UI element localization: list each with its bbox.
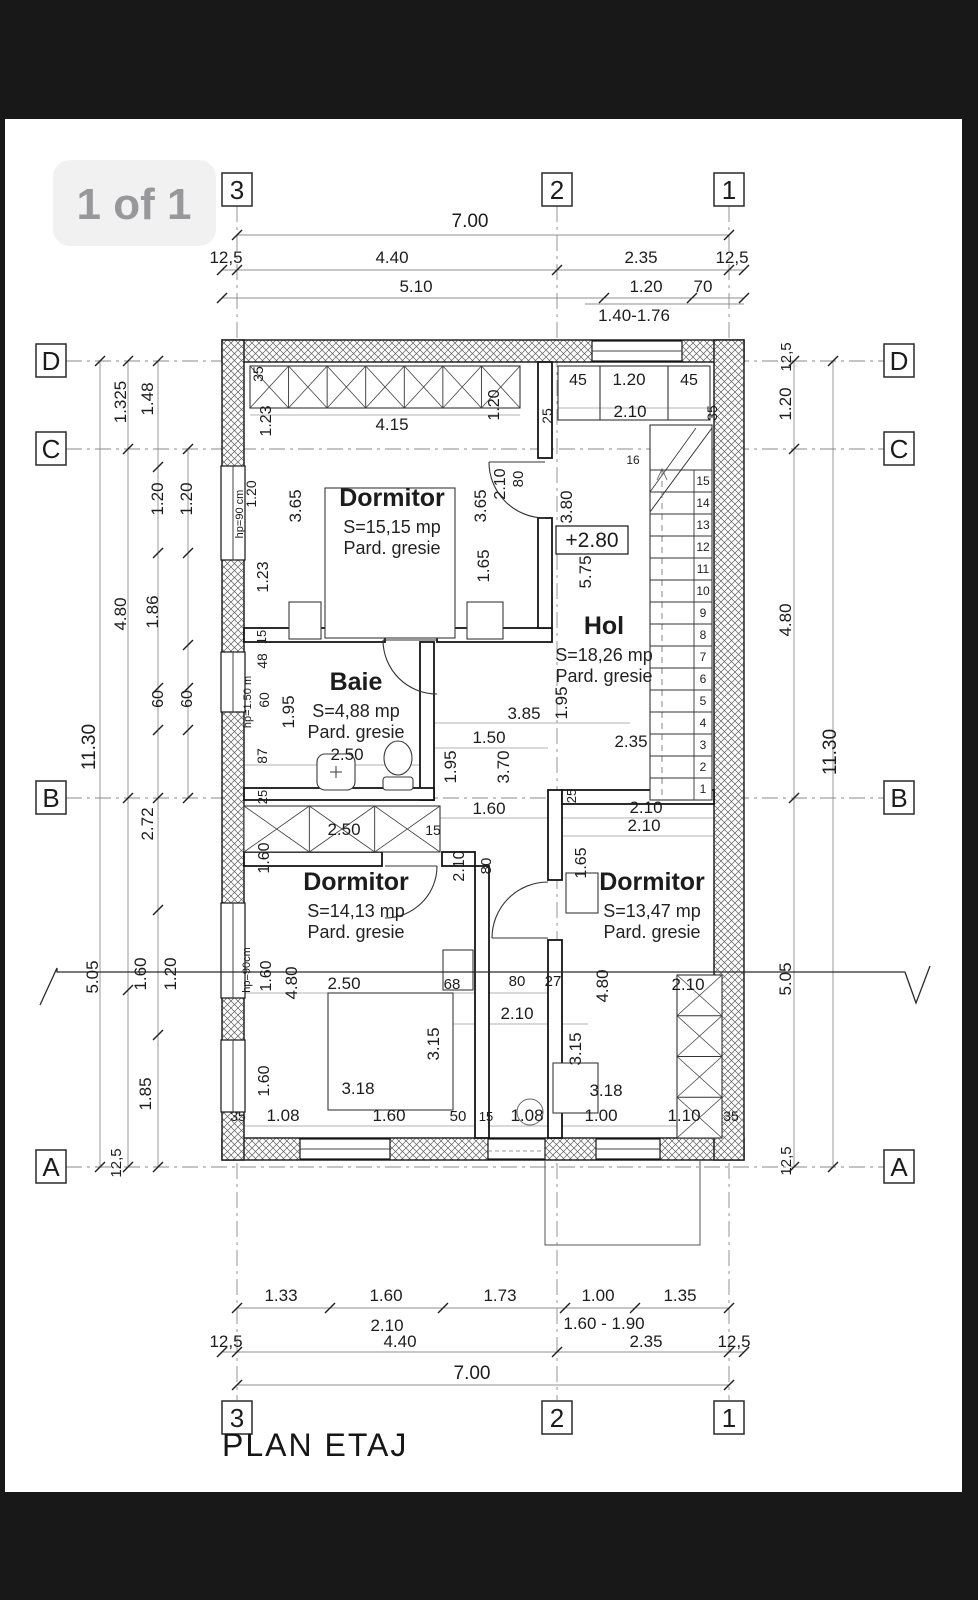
dim-label: 3.70 xyxy=(494,750,513,783)
toilet-icon xyxy=(383,741,413,790)
stair-step-number: 14 xyxy=(696,496,710,510)
dim-label: 1.20 xyxy=(148,482,167,515)
dim-label: 45 xyxy=(680,372,698,389)
dim-label: 11.30 xyxy=(79,724,100,770)
dim-label: 12,5 xyxy=(108,1148,125,1177)
door-bottom-balcony xyxy=(488,1139,545,1159)
grid-marker-label: B xyxy=(890,783,907,813)
stair-step-number: 15 xyxy=(696,474,710,488)
dim-label: hp=90cm xyxy=(241,947,253,993)
dim-label: 4.80 xyxy=(593,969,612,1002)
dim-label: 1.60 xyxy=(256,842,273,873)
dim-label: 87 xyxy=(254,748,270,764)
dim-label: 2.10 xyxy=(613,402,646,421)
dim-label: 1.65 xyxy=(474,549,493,582)
grid-marker-label: 2 xyxy=(550,1403,564,1433)
room-name: Dormitor xyxy=(339,484,445,512)
dim-label: 3.15 xyxy=(566,1032,585,1065)
dim-label: 60 xyxy=(256,692,272,708)
stair-step-number: 9 xyxy=(700,606,707,620)
stair-step-number: 11 xyxy=(697,562,710,576)
stair-step-number: 7 xyxy=(700,650,707,664)
room-name: Baie xyxy=(330,668,383,696)
dim-label: 35 xyxy=(250,366,266,382)
dim-label: 4.80 xyxy=(776,603,795,636)
dim-label: 1.60 xyxy=(258,960,275,991)
dim-label: 1.95 xyxy=(441,750,460,783)
grid-marker-label: 1 xyxy=(722,175,736,205)
dim-label: 60 xyxy=(150,690,167,708)
stair-step-number: 5 xyxy=(700,694,707,708)
dim-label: 2.10 xyxy=(629,798,662,817)
dim-label: 1.65 xyxy=(573,847,590,878)
dim-label: 1.60 xyxy=(131,957,150,990)
dim-label: 12,5 xyxy=(209,248,242,267)
dim-label: 3.85 xyxy=(507,704,540,723)
stair-step-number: 6 xyxy=(700,672,707,686)
dim-label: 60 xyxy=(179,690,196,708)
grid-marker-label: 1 xyxy=(722,1403,736,1433)
dim-label: 27 xyxy=(545,973,562,990)
stair-step-number: 1 xyxy=(700,782,707,796)
dim-label: 2.10 xyxy=(671,975,704,994)
stair-step-number: 16 xyxy=(626,453,640,467)
dim-label: 1.40-1.76 xyxy=(598,306,670,325)
dim-label: 80 xyxy=(510,471,527,488)
page-indicator-badge: 1 of 1 xyxy=(53,160,216,246)
dim-label: 1.00 xyxy=(581,1286,614,1305)
dim-label: 1.60 xyxy=(472,799,505,818)
stair-step-number: 12 xyxy=(696,540,710,554)
dim-label: 1.86 xyxy=(143,595,162,628)
dim-label: 7.00 xyxy=(454,1363,491,1384)
dim-label: 1.20 xyxy=(177,482,196,515)
dim-label: 4.40 xyxy=(383,1332,416,1351)
dim-label: 2.10 xyxy=(500,1004,533,1023)
floor-plan-drawing: 1 of 1 xyxy=(0,0,978,1600)
dim-label: 3.15 xyxy=(424,1027,443,1060)
grid-marker-label: 2 xyxy=(550,175,564,205)
grid-marker-label: A xyxy=(890,1152,908,1182)
stair-step-number: 4 xyxy=(700,716,707,730)
dim-label: 1.95 xyxy=(279,695,298,728)
dim-label: 1.23 xyxy=(255,561,272,592)
dim-label: 15 xyxy=(254,630,269,644)
page-indicator-text: 1 of 1 xyxy=(77,180,192,229)
dim-label: 11.30 xyxy=(820,729,841,775)
grid-marker-label: D xyxy=(42,346,61,376)
room-floor: Pard. gresie xyxy=(555,666,652,686)
plan-title: PLAN ETAJ xyxy=(222,1427,408,1463)
room-area: S=4,88 mp xyxy=(312,701,400,721)
dim-label: 15 xyxy=(425,822,441,838)
dim-label: 2.50 xyxy=(327,974,360,993)
dim-label: 1.20 xyxy=(776,387,795,420)
dim-label: 1.00 xyxy=(584,1106,617,1125)
dim-label: 1.73 xyxy=(483,1286,516,1305)
room-name: Hol xyxy=(584,612,624,640)
dim-label: 25 xyxy=(539,408,555,424)
dim-label: 2.72 xyxy=(138,807,157,840)
dim-label: 1.08 xyxy=(510,1106,543,1125)
dim-label: 12,5 xyxy=(209,1332,242,1351)
dim-label: 12,5 xyxy=(778,1146,795,1175)
dim-label: 1.20 xyxy=(161,957,180,990)
level-marker-text: +2.80 xyxy=(565,529,618,552)
dim-label: 2.35 xyxy=(629,1332,662,1351)
dim-label: 50 xyxy=(450,1108,467,1125)
window-bottom-1 xyxy=(300,1139,390,1159)
window-left-4 xyxy=(221,1040,245,1112)
dim-label: 1.50 xyxy=(472,728,505,747)
dim-label: 2.35 xyxy=(624,248,657,267)
stair-step-number: 13 xyxy=(696,518,710,532)
grid-marker-label: D xyxy=(890,346,909,376)
dim-label: 80 xyxy=(509,973,526,990)
dim-label: 2.50 xyxy=(330,745,363,764)
dim-label: hp=1.50 m xyxy=(242,676,254,728)
room-name: Dormitor xyxy=(303,868,409,896)
dim-label: 2.35 xyxy=(614,732,647,751)
room-area: S=13,47 mp xyxy=(603,901,701,921)
dim-label: 2.50 xyxy=(327,820,360,839)
dim-label: 1.23 xyxy=(258,405,275,436)
dim-label: 1.60 xyxy=(256,1065,273,1096)
dim-label: 25 xyxy=(564,789,579,803)
dim-label: 3.18 xyxy=(589,1081,622,1100)
grid-marker-label: 3 xyxy=(230,175,244,205)
dim-label: 68 xyxy=(444,976,461,993)
grid-marker-label: B xyxy=(42,783,59,813)
room-area: S=14,13 mp xyxy=(307,901,405,921)
dim-label: 45 xyxy=(569,372,587,389)
room-floor: Pard. gresie xyxy=(307,922,404,942)
room-floor: Pard. gresie xyxy=(343,538,440,558)
dim-label: 1.35 xyxy=(663,1286,696,1305)
dim-label: 1.20 xyxy=(612,370,645,389)
dim-label: 12,5 xyxy=(717,1332,750,1351)
dim-label: 1.60 xyxy=(369,1286,402,1305)
dim-label: 1.60 - 1.90 xyxy=(563,1314,644,1333)
dim-label: 3.65 xyxy=(286,489,305,522)
dim-label: 12,5 xyxy=(715,248,748,267)
room-area: S=18,26 mp xyxy=(555,645,653,665)
stair-step-number: 2 xyxy=(700,760,707,774)
dim-label: 1.10 xyxy=(667,1106,700,1125)
viewer-stage: 1 of 1 xyxy=(0,0,978,1600)
dim-label: 1.95 xyxy=(552,686,571,719)
dim-label: hp=90 cm xyxy=(234,490,246,539)
dim-label: 1.325 xyxy=(111,381,130,424)
room-floor: Pard. gresie xyxy=(603,922,700,942)
dim-label: 4.40 xyxy=(375,248,408,267)
dim-label: 35 xyxy=(230,1108,246,1124)
dim-label: 5.05 xyxy=(776,962,795,995)
window-top xyxy=(592,341,682,361)
dim-label: 80 xyxy=(478,858,495,875)
dim-label: 1.20 xyxy=(486,389,503,420)
stair-step-number: 8 xyxy=(700,628,707,642)
dim-label: 4.15 xyxy=(375,415,408,434)
dim-label: 5.10 xyxy=(399,277,432,296)
dim-label: 3.18 xyxy=(341,1079,374,1098)
dim-label: 1.60 xyxy=(372,1106,405,1125)
dim-label: 1.20 xyxy=(629,277,662,296)
dim-label: 2.10 xyxy=(492,468,509,499)
dim-label: 4.80 xyxy=(111,597,130,630)
stair-step-number: 10 xyxy=(696,584,710,598)
dim-label: 1.85 xyxy=(136,1077,155,1110)
grid-marker-label: C xyxy=(890,434,909,464)
dim-label: 1.08 xyxy=(266,1106,299,1125)
room-area: S=15,15 mp xyxy=(343,517,441,537)
dim-label: 35 xyxy=(704,405,720,421)
dim-label: 12,5 xyxy=(778,342,795,371)
level-marker: +2.80 xyxy=(556,526,628,554)
dim-label: 25 xyxy=(255,790,270,804)
window-bottom-2 xyxy=(596,1139,660,1159)
room-floor: Pard. gresie xyxy=(307,722,404,742)
dim-label: 7.00 xyxy=(452,211,489,232)
stair-step-number: 3 xyxy=(700,738,707,752)
dim-label: 48 xyxy=(254,653,270,669)
dim-label: 3.80 xyxy=(557,490,576,523)
dim-label: 5.05 xyxy=(83,960,102,993)
dim-label: 15 xyxy=(479,1109,493,1124)
dim-label: 1.48 xyxy=(138,382,157,415)
dim-label: 1.33 xyxy=(264,1286,297,1305)
dim-label: 5.75 xyxy=(576,555,595,588)
dim-label: 3.65 xyxy=(471,489,490,522)
grid-marker-label: C xyxy=(42,434,61,464)
dim-label: 4.80 xyxy=(282,966,301,999)
room-name: Dormitor xyxy=(599,868,705,896)
dim-label: 2.10 xyxy=(627,816,660,835)
grid-marker-label: A xyxy=(42,1152,60,1182)
dim-label: 2.10 xyxy=(451,850,468,881)
dim-label: 35 xyxy=(723,1108,739,1124)
dim-label: 70 xyxy=(694,277,713,296)
